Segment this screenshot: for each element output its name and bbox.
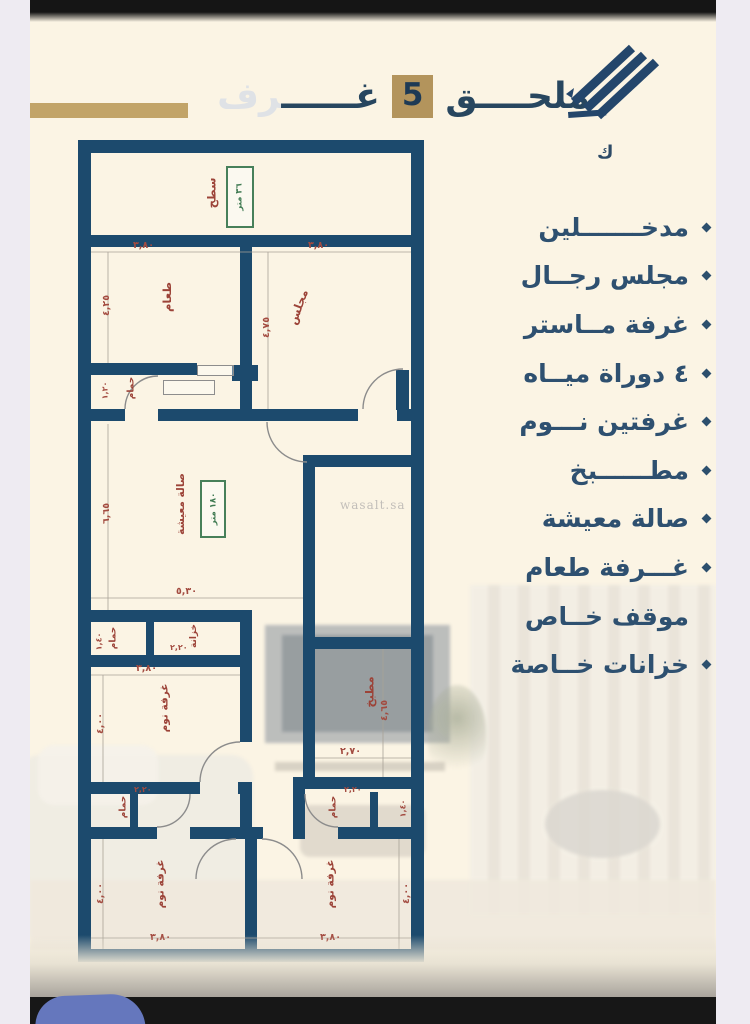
title-word-rooms: غــــــرف [217, 76, 380, 117]
dim-bathleft: ٢,٢٠ [134, 785, 152, 794]
list-item: غرفة مــاستر [430, 300, 716, 349]
list-item: مطــــــبخ [430, 446, 716, 495]
watermark: wasalt.sa [340, 498, 406, 512]
photo-fade-band [30, 935, 716, 999]
feature-label: مجلس رجــال [521, 261, 689, 290]
list-item: غرفتين نـــوم [430, 397, 716, 446]
pouf-image [545, 790, 660, 858]
list-item: مجلس رجــال [430, 252, 716, 301]
plant-image [428, 685, 486, 780]
dim-living-width: ٥,٣٠ [176, 586, 197, 597]
dim-majlis-width: ٣,٨٠ [308, 240, 329, 251]
area-badge-roof: ٣٦ متر [226, 166, 254, 228]
list-item: غـــرفة طعام [430, 543, 716, 592]
list-item: خزانات خــاصة [430, 640, 716, 689]
room-label-bedroom-mid: غرفة نوم [158, 684, 170, 733]
bullet-icon [702, 271, 712, 281]
list-item: صالة معيشة [430, 495, 716, 544]
feature-label: غرفتين نـــوم [519, 407, 689, 436]
dim-bathright: ٢,٢٠ [344, 785, 362, 794]
feature-label: غـــرفة طعام [525, 553, 689, 582]
logo-caption: ك [597, 142, 614, 163]
room-label-bath-strip: حمام [108, 627, 118, 650]
room-label-bedroom-right: غرفة نوم [324, 860, 336, 909]
dim-bathright-depth: ١,٤٠ [398, 800, 407, 818]
room-label-living: صالة معيشة [175, 473, 187, 535]
feature-label: مطــــــبخ [570, 456, 689, 485]
dim-bedright-depth: ٤,٠٠ [401, 883, 412, 904]
room-label-dining: طعام [160, 282, 174, 312]
room-label-bath-corridor: حمام [126, 377, 136, 400]
logo-tip [566, 88, 574, 98]
dim-majlis-depth: ٤,٧٥ [261, 317, 272, 338]
feature-label: غرفة مــاستر [524, 310, 689, 339]
room-label-bath-right: حمام [328, 796, 338, 819]
area-badge-living: ١٨٠ متر [200, 480, 226, 538]
title-word-rooms-tail: رف [217, 76, 281, 117]
flyer-canvas: ملحــــق 5 غــــــرف ك مدخـــــــلين مجل… [30, 0, 716, 1024]
dim-bedleft-depth: ٤,٠٠ [95, 883, 106, 904]
title-number-box: 5 [392, 75, 434, 118]
dim-living-depth: ٦,٦٥ [101, 503, 112, 524]
bullet-icon [702, 320, 712, 330]
bullet-icon [702, 465, 712, 475]
dim-corridor-bath: ١,٢٠ [100, 382, 109, 400]
bullet-icon [702, 222, 712, 232]
door-arc-layer [78, 140, 424, 962]
room-label-bedroom-left: غرفة نوم [154, 860, 166, 909]
list-item: موقف خــاص [430, 592, 716, 641]
features-list: مدخـــــــلين مجلس رجــال غرفة مــاستر ٤… [430, 203, 716, 689]
dim-strip-bath: ١,٤٠ [94, 633, 103, 651]
dim-kitchen-width: ٢,٧٠ [340, 746, 361, 757]
area-value: ١٨٠ متر [208, 493, 218, 526]
room-label-roof: سطح [204, 178, 218, 209]
dim-closet: ٢,٢٠ [170, 643, 188, 652]
bullet-icon [702, 563, 712, 573]
dim-kitchen-depth: ٤,٦٥ [379, 700, 390, 721]
room-label-closet: خزانة [189, 624, 199, 648]
feature-label: صالة معيشة [542, 504, 689, 533]
dimension-lines [91, 252, 411, 949]
area-value: ٣٦ متر [235, 183, 245, 210]
bullet-icon [702, 417, 712, 427]
list-item: مدخـــــــلين [430, 203, 716, 252]
bullet-icon [702, 514, 712, 524]
dim-bedmid-width: ٣,٨٠ [136, 663, 157, 674]
dim-dining-depth: ٤,٢٥ [101, 295, 112, 316]
dim-dining-width: ٣,٨٠ [133, 240, 154, 251]
company-logo-icon [560, 36, 670, 131]
feature-label: خزانات خــاصة [510, 650, 689, 679]
title-word-rooms-head: غــــــ [281, 76, 379, 117]
list-item: ٤ دوراة ميــاه [430, 349, 716, 398]
top-black-bar [30, 0, 716, 22]
bullet-icon [702, 368, 712, 378]
room-label-bath-left: حمام [118, 796, 128, 819]
feature-label: موقف خــاص [525, 602, 689, 631]
bullet-icon [702, 660, 712, 670]
page-title: ملحــــق 5 غــــــرف [180, 66, 590, 126]
floor-plan: ٣٦ متر ١٨٠ متر سطح طعام مجلس صالة معيشة … [78, 140, 424, 962]
dim-bedmid-depth: ٤,٠٠ [95, 713, 106, 734]
gold-underline-bar [30, 103, 188, 118]
room-label-kitchen: مطبخ [363, 676, 377, 707]
door-arcs [125, 369, 403, 879]
feature-label: ٤ دوراة ميــاه [523, 359, 689, 388]
feature-label: مدخـــــــلين [538, 213, 689, 242]
